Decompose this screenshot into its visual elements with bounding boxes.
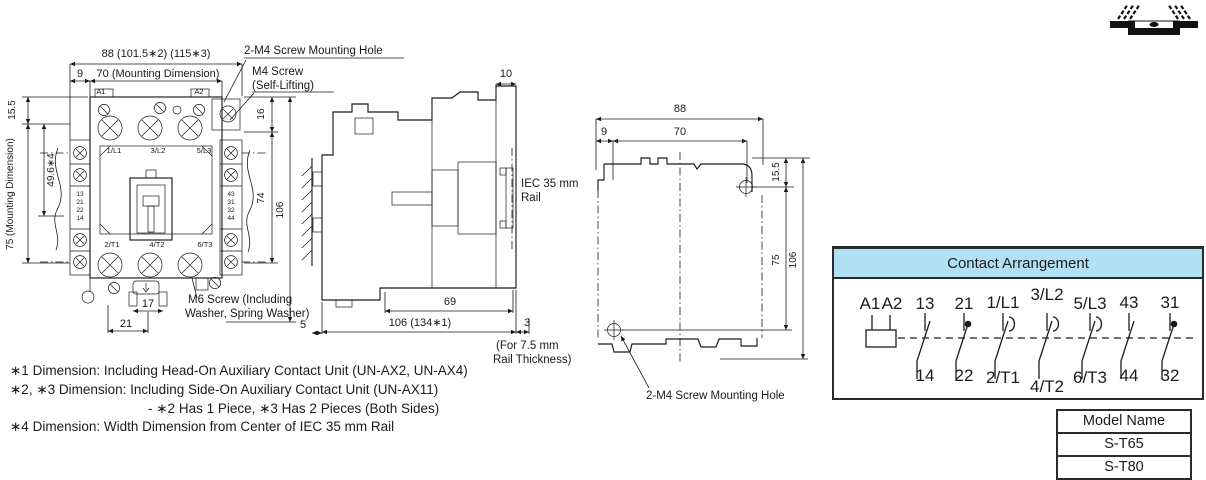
dim-side-offset: 9 [601,126,607,138]
aux-terminal-22: 22 [76,207,84,214]
aux-terminal-43: 43 [227,191,235,198]
dim-top-step: 10 [500,68,512,80]
dim-mounting-height: 75 [771,254,782,266]
terminal-3l2: 3/L2 [151,146,166,155]
contact-label-13: 13 [916,294,935,313]
model-name-table: Model Name S-T65 S-T80 [1056,409,1192,480]
label-iec-rail: IEC 35 mm [521,178,579,190]
dim-total-width: 88 [674,103,686,115]
dim-mounting-height: 75 (Mounting Dimension) [5,138,16,250]
label-m6-screw-2: Washer, Spring Washer) [185,308,310,320]
dim-total-depth: 106 (134∗1) [389,317,451,329]
aux-terminal-31: 31 [227,199,235,206]
aux-terminal-13: 13 [76,191,84,198]
footnote-4: ∗4 Dimension: Width Dimension from Cente… [10,418,468,437]
terminal-a1: A1 [96,87,105,96]
model-row-st80: S-T80 [1058,455,1190,478]
coil-label-a1: A1 [860,294,881,313]
dim-mounting-width: 70 (Mounting Dimension) [97,68,220,80]
contact-label-6t3: 6/T3 [1073,368,1107,387]
aux-terminal-21: 21 [76,199,84,206]
contact-arrangement-diagram: A1 A2 13 21 1/L1 3/L2 5/L3 43 31 14 22 2… [834,279,1202,397]
terminal-5l3: 5/L3 [197,146,212,155]
label-rail-thickness-2: Rail Thickness) [493,354,572,366]
coil-symbol [866,330,896,347]
main-terminal-screw-icon [178,116,202,140]
contact-label-32: 32 [1161,366,1180,385]
aux-terminal-44: 44 [227,215,235,222]
dim-total-width: 88 (101.5∗2) (115∗3) [102,48,211,60]
contact-label-5l3: 5/L3 [1073,294,1106,313]
contact-label-31: 31 [1161,293,1180,312]
dim-foot-inner: 17 [142,298,154,310]
label-m4-screw: M4 Screw [252,66,304,78]
front-view: 88 (101.5∗2) (115∗3) 9 70 (Mounting Dime… [5,45,404,333]
dim-total-height: 106 [788,251,799,268]
catalog-dimension-page: 88 (101.5∗2) (115∗3) 9 70 (Mounting Dime… [0,0,1206,480]
rear-view: 88 9 70 15.5 75 106 2-M4 Screw [596,103,810,402]
dim-wall-gap: 5 [300,319,306,331]
contact-label-43: 43 [1120,293,1139,312]
label-iec-rail-2: Rail [521,192,541,204]
dim-top-height: 16 [256,108,267,120]
terminal-2t1: 2/T1 [104,240,119,249]
footnote-2: ∗2, ∗3 Dimension: Including Side-On Auxi… [10,381,468,400]
footnote-2b: - ∗2 Has 1 Piece, ∗3 Has 2 Pieces (Both … [10,400,468,419]
footnote-1: ∗1 Dimension: Including Head-On Auxiliar… [10,362,468,381]
terminal-4t2: 4/T2 [149,240,164,249]
aux-terminal-14: 14 [76,215,84,222]
dim-rail-center: 49.6∗4 [46,153,57,187]
contact-label-22: 22 [955,366,974,385]
footnotes: ∗1 Dimension: Including Head-On Auxiliar… [10,362,468,437]
contact-arrangement-panel: Contact Arrangement [832,246,1204,400]
contact-label-21: 21 [955,294,974,313]
screw-icon [154,102,165,113]
side-view: IEC 35 mm Rail 10 69 106 (134∗1) 3 (For … [300,68,579,366]
contact-label-3l2: 3/L2 [1030,285,1063,304]
terminal-6t3: 6/T3 [197,240,212,249]
mounting-hole-icon [604,320,624,340]
dim-mounting-width: 70 [674,126,686,138]
label-m4-mounting-hole: 2-M4 Screw Mounting Hole [646,390,785,402]
mounting-hole-icon [736,177,756,197]
screw-icon [98,104,109,115]
label-rail-thickness: (For 7.5 mm [496,340,559,352]
dim-inner-depth: 69 [444,296,456,308]
contact-label-4t2: 4/T2 [1030,377,1064,396]
label-m4-screw-2: (Self-Lifting) [252,80,314,92]
label-m4-mounting-hole: 2-M4 Screw Mounting Hole [244,45,383,57]
contact-label-44: 44 [1120,366,1139,385]
dim-side-offset: 9 [77,68,83,80]
contact-arrangement-title: Contact Arrangement [834,249,1202,279]
model-row-st65: S-T65 [1058,432,1190,455]
aux-terminal-32: 32 [227,207,235,214]
main-terminal-screw-icon [98,116,122,140]
dim-top-offset: 15.5 [7,100,18,120]
dim-foot-outer: 21 [120,318,132,330]
label-m6-screw: M6 Screw (Including [188,294,292,306]
dim-body-height: 74 [256,192,267,204]
din-rail-icon [1108,2,1200,38]
dim-total-height: 106 [275,201,286,218]
contact-label-1l1: 1/L1 [986,293,1019,312]
screw-icon [193,104,204,115]
coil-label-a2: A2 [882,294,903,313]
terminal-a2: A2 [194,87,203,96]
contact-label-14: 14 [916,366,935,385]
dim-top-offset: 15.5 [771,162,782,182]
model-table-header: Model Name [1058,411,1190,432]
contact-label-2t1: 2/T1 [986,368,1020,387]
main-terminal-screw-icon [138,116,162,140]
terminal-1l1: 1/L1 [107,146,122,155]
